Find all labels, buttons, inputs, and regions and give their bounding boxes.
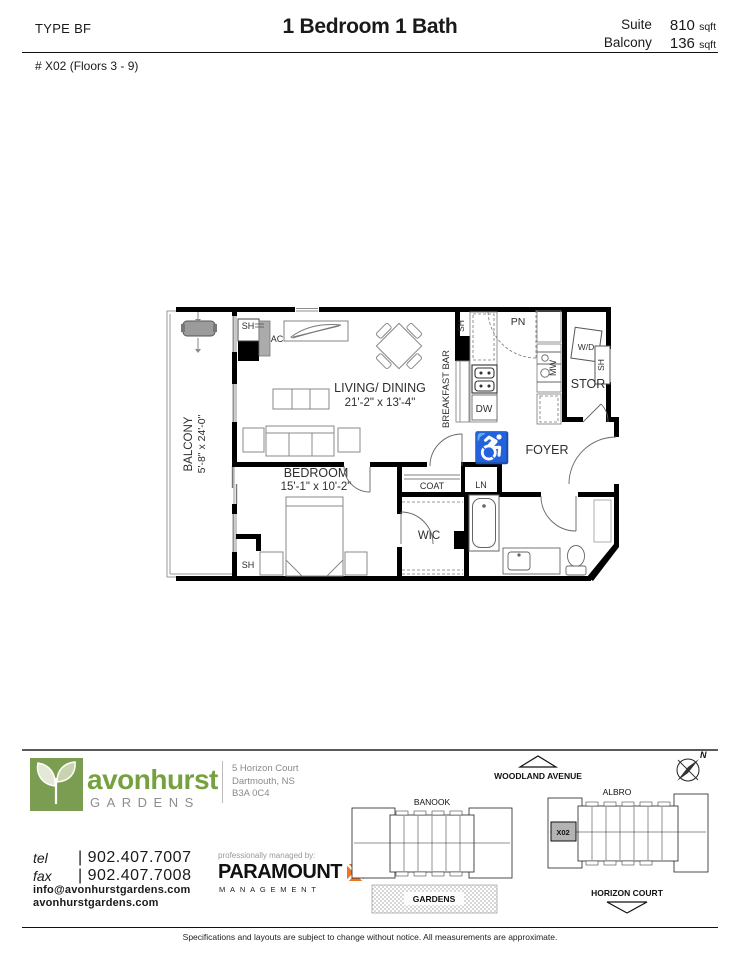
- email-link[interactable]: info@avonhurstgardens.com: [33, 884, 191, 896]
- disclaimer-text: Specifications and layouts are subject t…: [0, 932, 740, 942]
- dining-table: [364, 311, 435, 382]
- dw-label: DW: [476, 404, 493, 415]
- foyer-label: FOYER: [525, 443, 568, 457]
- paramount-name: PARAMOUNT: [218, 861, 342, 884]
- banook-building: [352, 808, 512, 878]
- pn-label: PN: [511, 316, 526, 328]
- sh-label-bedroom: SH: [242, 560, 255, 570]
- area-summary: Suite 810 sqft Balcony 136 sqft: [604, 17, 716, 52]
- balcony-label: Balcony: [604, 35, 652, 52]
- woodland-arrow-icon: [520, 756, 556, 767]
- sh-label-kitchen: SH: [456, 320, 466, 332]
- living-label: LIVING/ DINING: [334, 381, 426, 395]
- ln-label: LN: [475, 480, 487, 490]
- website-link[interactable]: avonhurstgardens.com: [33, 897, 159, 909]
- coat-label: COAT: [420, 481, 445, 491]
- living-furniture: [243, 389, 360, 456]
- floorplan-sheet: TYPE BF 1 Bedroom 1 Bath Suite 810 sqft …: [0, 0, 740, 957]
- bbq-grill: [181, 310, 217, 353]
- svg-text:BALCONY: BALCONY: [183, 416, 195, 471]
- brand-divider: [222, 761, 223, 803]
- gardens-area: GARDENS: [372, 885, 497, 913]
- floor-plan: SH AC LIVING/ DINING 21'-2" x: [156, 294, 638, 608]
- woodland-avenue-label: WOODLAND AVENUE: [494, 771, 582, 781]
- bedroom-dims: 15'-1" x 10'-2": [281, 481, 352, 493]
- balcony-label: BALCONY 5'-8" x 24'-0": [183, 414, 208, 473]
- tel-number: | 902.407.7007: [78, 849, 191, 867]
- site-map: WOODLAND AVENUE N BANOOK ALBRO: [340, 748, 732, 924]
- bath-cabinet: [594, 500, 611, 542]
- managed-by-label: professionally managed by:: [218, 851, 315, 860]
- svg-text:5'-8" x 24'-0": 5'-8" x 24'-0": [196, 414, 208, 473]
- vanity: [503, 548, 560, 574]
- horizon-court-label: HORIZON COURT: [591, 888, 664, 898]
- suite-label: Suite: [604, 17, 652, 34]
- bed: [260, 497, 367, 576]
- suite-area: 810 sqft: [670, 17, 716, 34]
- unit-x02-label: X02: [556, 828, 569, 837]
- avonhurst-logo-icon: [30, 758, 83, 811]
- banook-label: BANOOK: [414, 797, 451, 807]
- living-dims: 21'-2" x 13'-4": [345, 397, 416, 409]
- brand-name: avonhurst: [87, 764, 218, 796]
- north-compass-icon: N: [677, 750, 707, 781]
- wic-label: WIC: [418, 530, 440, 542]
- mw-label: MW: [548, 360, 558, 376]
- wheelchair-icon: ♿: [473, 430, 510, 465]
- tel-label: tel: [33, 849, 78, 867]
- address-block: 5 Horizon Court Dartmouth, NS B3A 0C4: [232, 763, 299, 801]
- albro-label: ALBRO: [603, 787, 632, 797]
- brand-subname: GARDENS: [90, 795, 200, 810]
- ac-label: AC: [271, 334, 284, 344]
- horizon-arrow-icon: [607, 902, 647, 913]
- breakfast-bar-label: BREAKFAST BAR: [441, 350, 452, 428]
- wd-label: W/D: [578, 342, 595, 352]
- header-rule: [22, 52, 718, 53]
- balcony-area: 136 sqft: [670, 35, 716, 52]
- fax-number: | 902.407.7008: [78, 867, 191, 885]
- sh-label-stor: SH: [596, 359, 606, 371]
- stor-label: STOR: [571, 377, 606, 391]
- fax-label: fax: [33, 867, 78, 885]
- svg-text:N: N: [700, 750, 707, 760]
- sh-label-entry: SH: [242, 321, 255, 331]
- unit-number-label: # X02 (Floors 3 - 9): [35, 59, 138, 73]
- paramount-subname: MANAGEMENT: [219, 885, 321, 894]
- toilet: [566, 546, 586, 576]
- svg-text:GARDENS: GARDENS: [413, 894, 456, 904]
- range: [472, 365, 497, 393]
- art-shelf: [284, 321, 348, 341]
- footer-rule: [22, 927, 718, 928]
- closet-shelves: [404, 475, 460, 479]
- contact-block: tel| 902.407.7007 fax| 902.407.7008: [33, 849, 191, 885]
- bathtub: [469, 495, 499, 551]
- bedroom-label: BEDROOM: [284, 466, 349, 480]
